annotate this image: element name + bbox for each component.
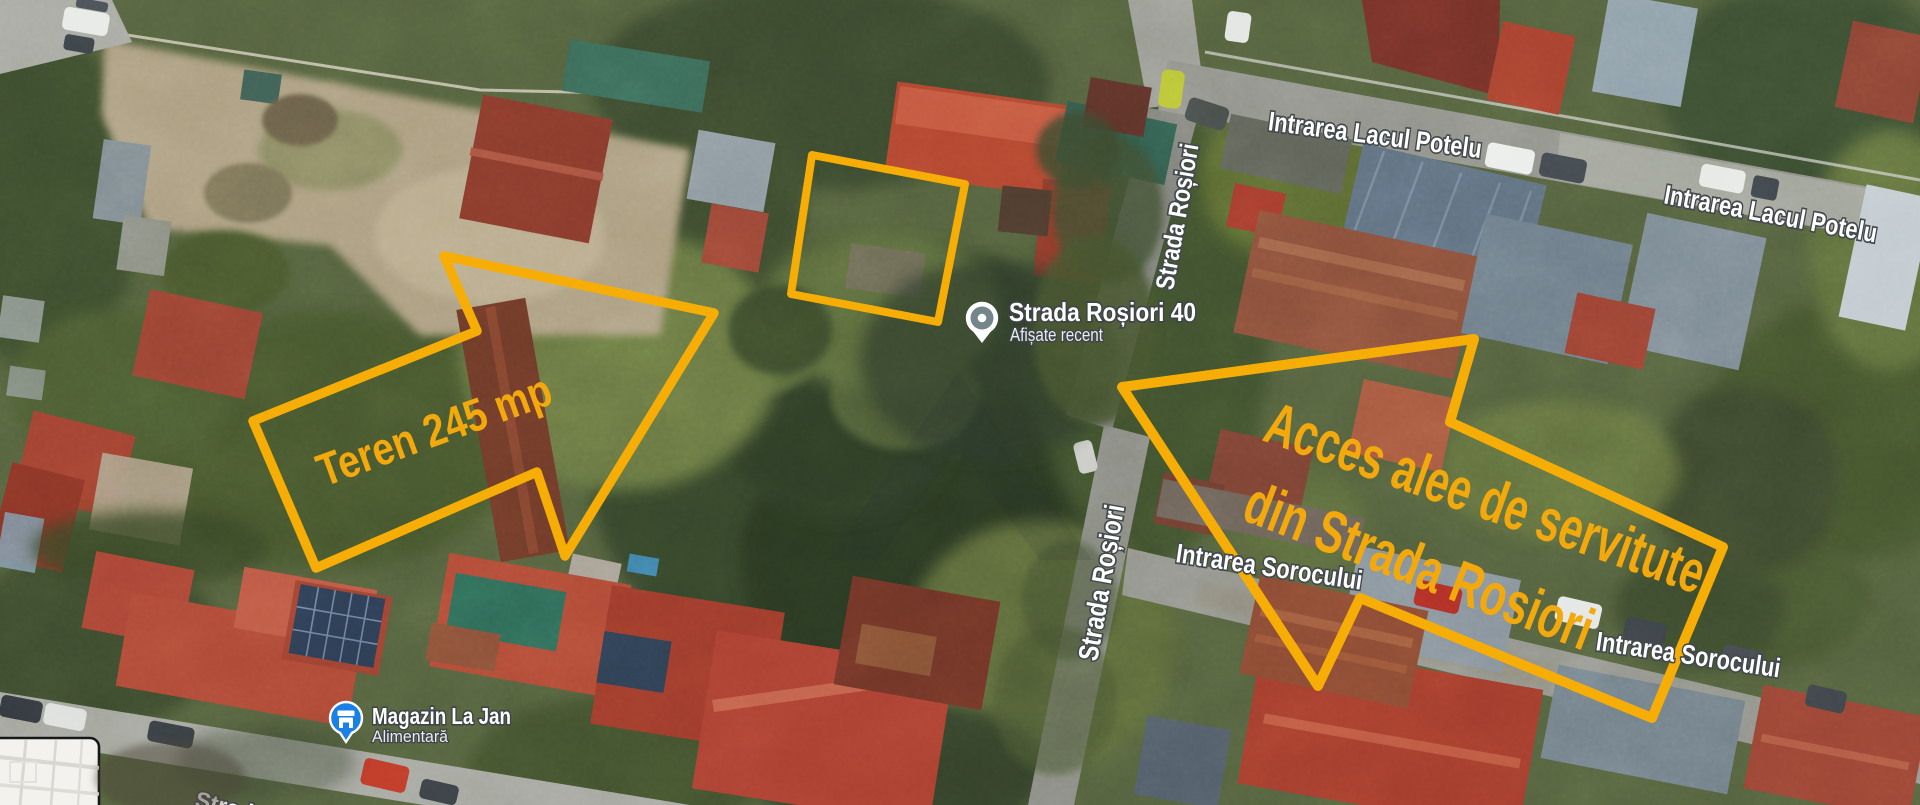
svg-text:Afișate recent: Afișate recent	[1010, 325, 1103, 345]
svg-text:Magazin La Jan: Magazin La Jan	[372, 703, 511, 729]
svg-text:Strada Roșiori 40: Strada Roșiori 40	[1009, 297, 1196, 327]
svg-text:Alimentară: Alimentară	[372, 727, 449, 746]
